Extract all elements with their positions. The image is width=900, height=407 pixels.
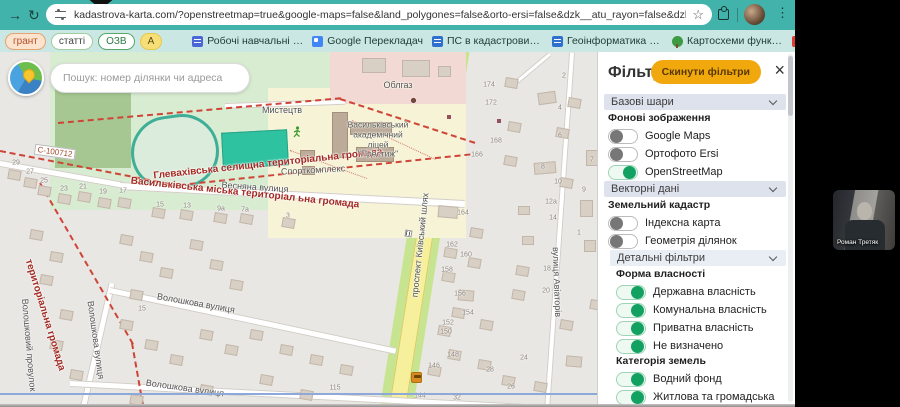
map-building — [49, 251, 64, 263]
map-building — [309, 354, 324, 366]
house-number: 8 — [541, 164, 545, 171]
search-pill[interactable] — [50, 63, 250, 93]
house-number: 24 — [520, 355, 528, 362]
house-number: 164 — [457, 210, 469, 217]
toggle-switch[interactable] — [608, 234, 638, 249]
map-building — [37, 185, 52, 197]
screenshot-stage: → ↻ kadastrova-karta.com/?openstreetmap=… — [0, 0, 900, 407]
vehicle-poi-icon — [411, 372, 422, 383]
house-number: 152 — [442, 320, 454, 327]
map-building — [199, 329, 214, 341]
house-number: 4 — [558, 105, 562, 112]
browser-window: → ↻ kadastrova-karta.com/?openstreetmap=… — [0, 0, 795, 404]
map-building — [537, 91, 556, 105]
toggle-label: Комунальна власність — [653, 304, 767, 316]
filters-panel: Фільтри Скинути фільтри × Базові шариФон… — [597, 52, 795, 404]
house-number: 3 — [286, 213, 290, 220]
running-person-icon — [292, 126, 302, 138]
toggle-label: Google Maps — [645, 130, 710, 142]
map-building — [23, 177, 38, 189]
translate-favicon-icon — [312, 36, 323, 47]
house-number: 9а — [217, 206, 225, 213]
toggle-knob — [610, 148, 623, 161]
house-number: 12а — [545, 199, 557, 206]
map-building — [159, 267, 174, 279]
map-canvas[interactable]: 2927252321191715139а7а315174172416861668… — [0, 52, 597, 404]
house-number: 148 — [447, 352, 459, 359]
chevron-down-icon — [769, 97, 777, 105]
tree-trunk — [676, 44, 678, 48]
map-building — [69, 369, 84, 381]
address-bar[interactable]: kadastrova-karta.com/?openstreetmap=true… — [46, 4, 712, 25]
tab-group-chip[interactable]: статті — [51, 33, 93, 50]
map-building — [503, 155, 518, 167]
map-building — [566, 355, 583, 367]
map-building — [59, 309, 74, 321]
house-number: 7а — [241, 207, 249, 214]
site-logo[interactable] — [8, 60, 44, 96]
house-number: 1 — [577, 230, 581, 237]
extensions-icon[interactable] — [718, 9, 729, 20]
filter-toggle-row: Індексна карта — [608, 214, 720, 232]
bookmark-label: Геоінформатика -… — [567, 35, 663, 47]
toggle-knob — [623, 166, 636, 179]
toggle-label: Геометрія ділянок — [645, 235, 737, 247]
map-building — [362, 58, 386, 73]
house-number: 168 — [490, 138, 502, 145]
street-road — [514, 52, 551, 84]
map-building — [438, 66, 451, 77]
building-node-dot — [447, 115, 451, 119]
chevron-down-icon — [769, 184, 777, 192]
crossing-icon — [404, 229, 412, 237]
doc-lines — [434, 39, 441, 44]
toggle-switch[interactable] — [608, 147, 638, 162]
house-number: 160 — [460, 252, 472, 259]
map-building — [229, 279, 244, 291]
filter-toggle-row: Ортофото Ersi — [608, 145, 718, 163]
map-building — [179, 209, 194, 221]
map-building — [57, 193, 72, 205]
map-building — [567, 97, 582, 109]
map-building — [438, 205, 459, 219]
toggle-label: OpenStreetMap — [645, 166, 723, 178]
tab-group-chip[interactable]: А — [140, 33, 163, 50]
poi-label: Облгаз — [383, 80, 412, 90]
toolbar-separator — [737, 8, 738, 22]
map-building — [522, 236, 534, 245]
map-building — [7, 169, 22, 181]
toggle-knob — [631, 304, 644, 317]
map-building — [339, 364, 354, 376]
doc-lines — [554, 39, 561, 44]
toggle-knob — [631, 391, 644, 404]
bookmark-label: Робочі навчальні п… — [207, 35, 303, 47]
toggle-knob — [610, 217, 623, 230]
house-number: 19 — [99, 189, 107, 196]
doc-favicon-icon — [192, 36, 203, 47]
map-building — [129, 394, 144, 404]
participant-silhouette — [857, 202, 872, 220]
house-number: 29 — [12, 160, 20, 167]
map-building — [580, 200, 593, 217]
map-building — [504, 77, 519, 89]
map-building — [144, 339, 159, 351]
horizontal-blue-line — [0, 393, 597, 395]
house-number: 26 — [507, 384, 515, 391]
chevron-down-icon — [769, 253, 777, 261]
house-number: 27 — [26, 169, 34, 176]
filter-group-label: Категорія земель — [616, 355, 706, 367]
house-number: 28 — [486, 367, 494, 374]
map-building — [151, 207, 166, 219]
map-building — [279, 344, 294, 356]
toggle-knob — [610, 130, 623, 143]
house-number: 150 — [440, 329, 452, 336]
bookmark-items: Робочі навчальні п…Google ПерекладачПС в… — [192, 35, 900, 47]
house-number: 9 — [582, 187, 586, 194]
map-zone — [330, 52, 466, 104]
bookmark-item[interactable]: Картосхеми функці… — [672, 35, 783, 47]
map-building — [213, 212, 228, 224]
bookmark-item[interactable]: Геоінформатика -… — [552, 35, 663, 47]
map-building — [259, 374, 274, 386]
map-building — [129, 289, 144, 301]
lyceum-label: Васильківськийакадемічнийліцей"Престиж" — [348, 120, 409, 159]
house-number: 25 — [40, 178, 48, 185]
profile-avatar[interactable] — [744, 4, 765, 25]
map-building — [119, 319, 134, 331]
map-building — [209, 259, 224, 271]
filter-group-label: Земельний кадастр — [608, 199, 710, 211]
toggle-switch[interactable] — [608, 165, 638, 180]
toggle-label: Державна власність — [653, 286, 756, 298]
doc-favicon-icon — [432, 36, 443, 47]
map-building — [518, 206, 530, 215]
toggle-switch[interactable] — [616, 390, 646, 405]
house-number: 6 — [558, 133, 562, 140]
toggle-label: Не визначено — [653, 340, 723, 352]
participant-name: Роман Третяк — [837, 239, 878, 246]
toggle-switch[interactable] — [616, 339, 646, 354]
filter-toggle-row: Державна власність — [616, 283, 756, 301]
toggle-label: Приватна власність — [653, 322, 753, 334]
house-number: 172 — [485, 100, 497, 107]
house-number: 32 — [453, 395, 461, 402]
tab-group-chips: грантстаттіОЗВА — [5, 33, 162, 50]
toggle-switch[interactable] — [608, 216, 638, 231]
toggle-knob — [631, 322, 644, 335]
filter-toggle-row: Комунальна власність — [616, 301, 767, 319]
browser-toolbar: → ↻ kadastrova-karta.com/?openstreetmap=… — [0, 0, 795, 30]
forward-button[interactable]: → — [8, 5, 22, 25]
filter-section-header[interactable]: Векторні дані — [604, 181, 786, 197]
bookmark-item[interactable]: ПС в кадастрових с… — [432, 35, 543, 47]
toggle-switch[interactable] — [616, 321, 646, 336]
map-building — [402, 60, 430, 77]
map-building — [29, 229, 44, 241]
house-number: 156 — [454, 291, 466, 298]
filter-section-header[interactable]: Базові шари — [604, 94, 786, 110]
toggle-knob — [631, 373, 644, 386]
street-label: Волошковий провулок — [20, 298, 38, 391]
bookmark-star-icon[interactable]: ☆ — [692, 7, 704, 23]
building-node-dot — [497, 119, 501, 123]
panel-scrollbar-thumb[interactable] — [788, 56, 793, 116]
map-building — [224, 344, 239, 356]
map-building — [117, 197, 132, 209]
map-building — [559, 319, 574, 331]
map-building — [469, 227, 484, 239]
toggle-label: Житлова та громадська — [653, 391, 775, 403]
toggle-knob — [631, 340, 644, 353]
bookmarks-bar: грантстаттіОЗВА Робочі навчальні п…Googl… — [0, 30, 795, 52]
reset-filters-button[interactable]: Скинути фільтри — [651, 60, 761, 84]
map-building — [299, 389, 314, 401]
map-search-control — [8, 60, 250, 96]
map-building — [189, 239, 204, 251]
filter-toggle-row: Водний фонд — [616, 370, 722, 388]
street-label: Волошкова вулиця — [145, 378, 224, 399]
house-number: 7 — [590, 157, 594, 164]
map-building — [533, 381, 548, 393]
house-number: 174 — [483, 82, 495, 89]
tree-favicon-icon — [672, 36, 683, 47]
house-number: 10 — [554, 179, 562, 186]
filter-toggle-row: Житлова та громадська — [616, 388, 775, 404]
poi-marker-icon — [411, 98, 416, 103]
url-text[interactable]: kadastrova-karta.com/?openstreetmap=true… — [74, 9, 686, 21]
bookmark-label: Google Перекладач — [327, 35, 423, 47]
reload-button[interactable]: ↻ — [28, 5, 40, 25]
map-building — [77, 191, 92, 203]
toggle-label: Водний фонд — [653, 373, 722, 385]
house-number: 21 — [79, 184, 87, 191]
house-number: 23 — [60, 186, 68, 193]
house-number: 15 — [138, 306, 146, 313]
filter-toggle-row: Геометрія ділянок — [608, 232, 737, 250]
house-number: 2 — [562, 73, 566, 80]
site-settings-icon[interactable] — [55, 11, 66, 18]
doc-lines — [194, 39, 201, 44]
house-number: 17 — [119, 188, 127, 195]
map-building — [467, 257, 482, 269]
toggle-switch[interactable] — [608, 129, 638, 144]
map-building — [169, 354, 184, 366]
toggle-knob — [631, 286, 644, 299]
house-number: 154 — [462, 310, 474, 317]
house-number: 20 — [542, 288, 550, 295]
bookmark-label: Картосхеми функці… — [687, 35, 783, 47]
toggle-switch[interactable] — [616, 303, 646, 318]
map-building — [511, 289, 526, 301]
toggle-label: Індексна карта — [645, 217, 720, 229]
house-number: 115 — [329, 385, 340, 392]
page-content: 2927252321191715139а7а315174172416861668… — [0, 52, 795, 404]
house-number: 162 — [446, 242, 458, 249]
bookmark-item[interactable]: Робочі навчальні п… — [192, 35, 303, 47]
house-number: 18 — [543, 266, 551, 273]
filter-toggle-row: Google Maps — [608, 127, 710, 145]
map-building — [479, 319, 494, 331]
filter-group-label: Форма власності — [616, 268, 705, 280]
street-label: вулиця Авіаторів — [551, 247, 563, 317]
filter-toggle-row: Не визначено — [616, 337, 723, 355]
webcam-tile: Роман Третяк — [833, 190, 895, 250]
video-call-sidebar: Роман Третяк — [795, 0, 900, 407]
toggle-switch[interactable] — [616, 285, 646, 300]
filter-toggle-row: Приватна власність — [616, 319, 753, 337]
house-number: 166 — [471, 152, 483, 159]
filter-toggle-row: OpenStreetMap — [608, 163, 723, 181]
map-building — [507, 121, 522, 133]
toggle-switch[interactable] — [616, 372, 646, 387]
house-number: 13 — [183, 203, 191, 210]
doc-favicon-icon — [552, 36, 563, 47]
map-building — [584, 240, 596, 252]
translate-glyph — [314, 38, 318, 42]
map-building — [443, 247, 458, 259]
toggle-knob — [610, 235, 623, 248]
menu-kebab-icon[interactable]: ⋮ — [776, 5, 789, 21]
search-input[interactable] — [51, 64, 249, 92]
filter-group-label: Фонові зображення — [608, 112, 711, 124]
map-building — [249, 329, 264, 341]
house-number: 14 — [549, 215, 557, 222]
filter-section-header[interactable]: Детальні фільтри — [610, 250, 786, 266]
house-number: 146 — [428, 363, 440, 370]
bookmark-item[interactable]: Google Перекладач — [312, 35, 423, 47]
house-number: 158 — [441, 267, 453, 274]
toggle-label: Ортофото Ersi — [645, 148, 718, 160]
map-building — [119, 234, 134, 246]
tab-group-chip[interactable]: грант — [5, 33, 46, 50]
tab-group-chip[interactable]: ОЗВ — [98, 33, 135, 50]
close-panel-icon[interactable]: × — [774, 61, 785, 79]
bookmark-label: ПС в кадастрових с… — [447, 35, 543, 47]
house-number: 15 — [156, 202, 164, 209]
map-building — [589, 299, 597, 311]
map-building — [515, 265, 530, 277]
street-label: Мистецтв — [262, 105, 302, 115]
map-building — [97, 197, 112, 209]
map-building — [139, 251, 154, 263]
map-building — [239, 213, 254, 225]
